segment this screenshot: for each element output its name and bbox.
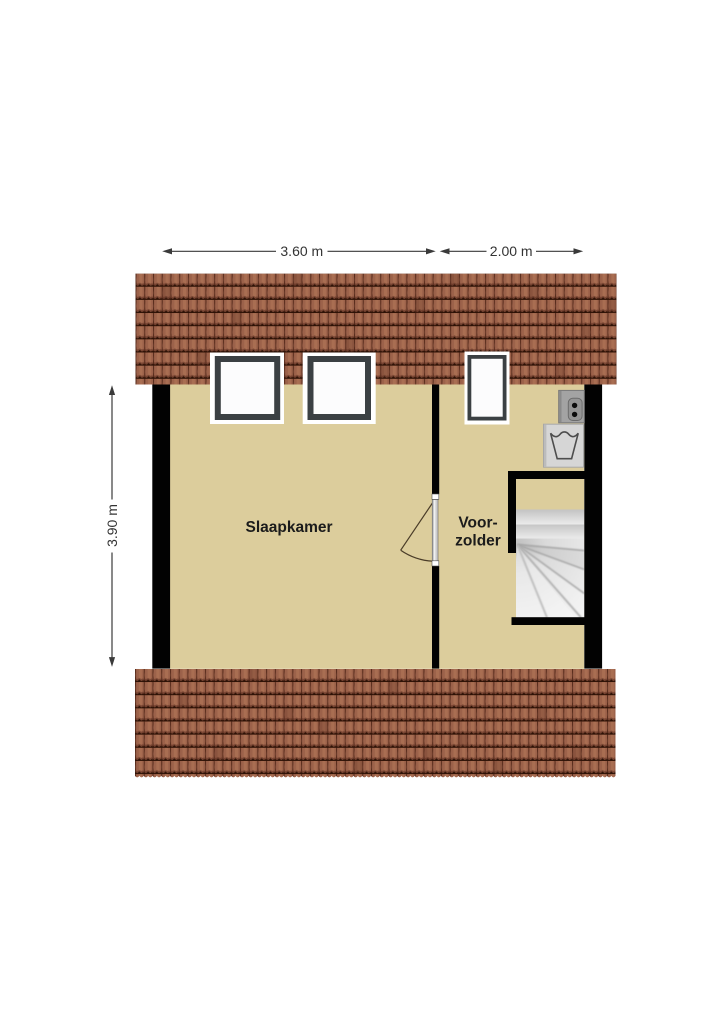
svg-text:Slaapkamer: Slaapkamer bbox=[245, 519, 332, 536]
svg-text:zolder: zolder bbox=[455, 533, 501, 550]
svg-text:2.00 m: 2.00 m bbox=[490, 243, 533, 259]
svg-text:Voor-: Voor- bbox=[458, 515, 497, 532]
svg-text:3.60 m: 3.60 m bbox=[280, 243, 323, 259]
svg-text:3.90 m: 3.90 m bbox=[104, 504, 120, 547]
